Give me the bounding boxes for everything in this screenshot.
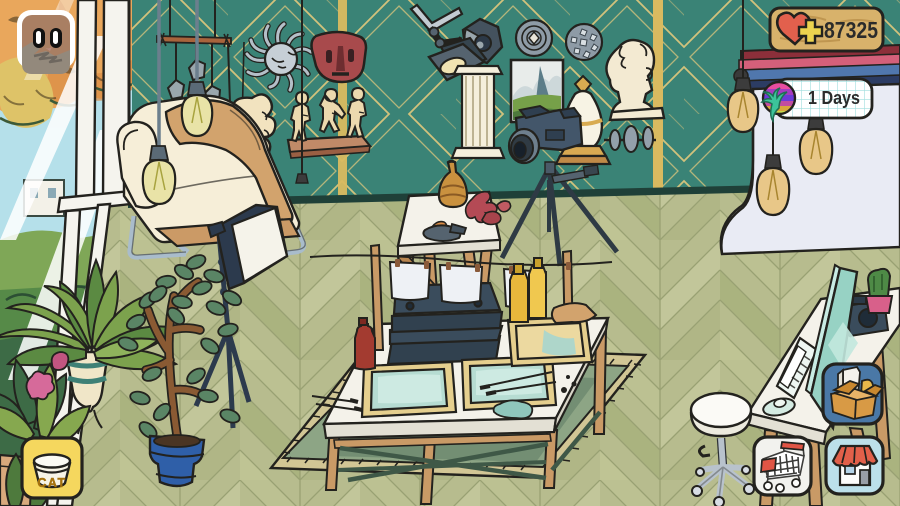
svg-text:87325: 87325 [824,17,878,43]
svg-text:CAT: CAT [37,476,66,490]
svg-text:1 Days: 1 Days [808,88,860,108]
